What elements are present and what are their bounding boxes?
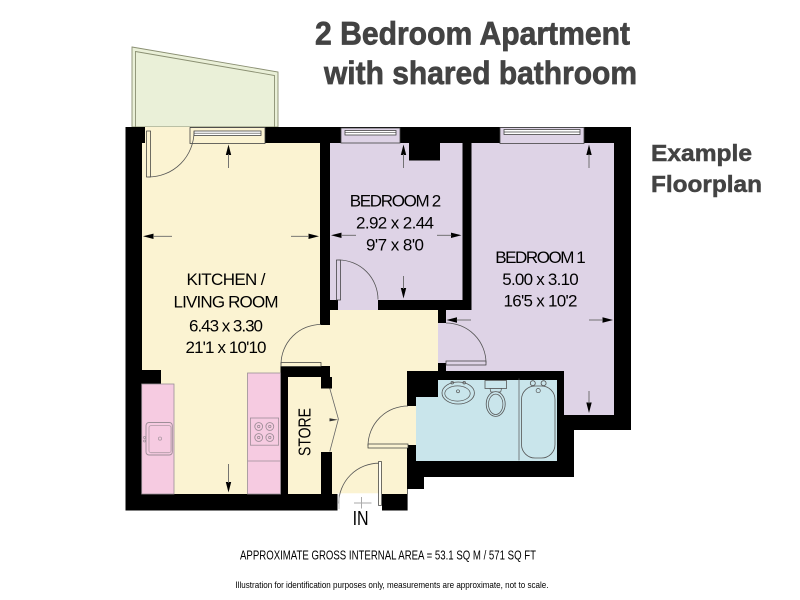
svg-text:BEDROOM 1: BEDROOM 1	[495, 248, 586, 267]
svg-text:Illustration for identificatio: Illustration for identification purposes…	[236, 580, 549, 591]
svg-text:LIVING ROOM: LIVING ROOM	[174, 293, 279, 312]
svg-text:6.43 x 3.30: 6.43 x 3.30	[189, 317, 263, 336]
svg-text:2 Bedroom Apartment: 2 Bedroom Apartment	[315, 16, 630, 52]
svg-text:5.00 x 3.10: 5.00 x 3.10	[502, 270, 579, 289]
svg-text:21'1 x 10'10: 21'1 x 10'10	[186, 338, 267, 357]
svg-text:9'7 x 8'0: 9'7 x 8'0	[366, 236, 424, 255]
svg-text:16'5 x 10'2: 16'5 x 10'2	[504, 292, 578, 311]
svg-text:Example: Example	[651, 140, 752, 166]
svg-text:2.92 x 2.44: 2.92 x 2.44	[356, 213, 434, 232]
svg-text:APPROXIMATE GROSS INTERNAL ARE: APPROXIMATE GROSS INTERNAL AREA = 53.1 S…	[240, 549, 536, 563]
svg-text:with shared bathroom: with shared bathroom	[323, 55, 637, 91]
svg-text:Floorplan: Floorplan	[651, 171, 762, 197]
svg-text:IN: IN	[353, 508, 369, 530]
svg-text:STORE: STORE	[295, 408, 315, 456]
svg-text:BEDROOM 2: BEDROOM 2	[350, 192, 442, 211]
svg-text:KITCHEN /: KITCHEN /	[187, 270, 266, 289]
